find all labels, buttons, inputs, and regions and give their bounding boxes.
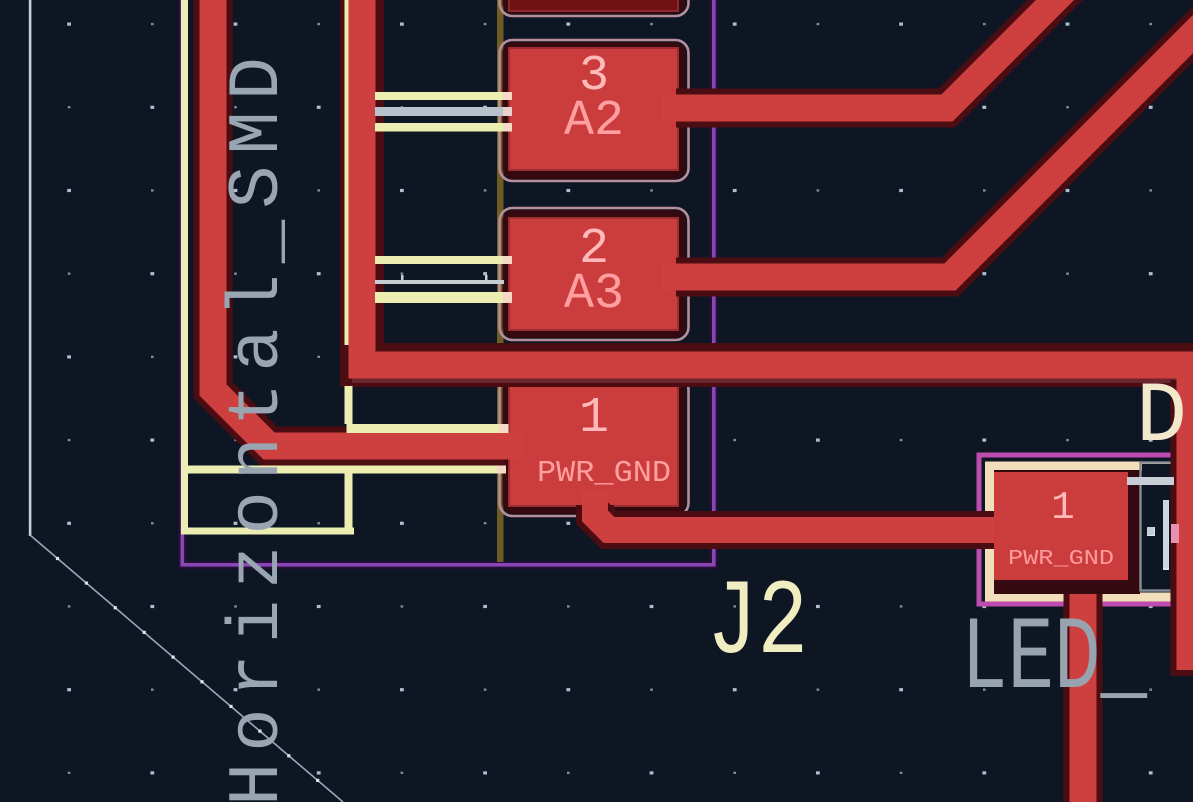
svg-text:J2: J2 bbox=[707, 564, 808, 685]
svg-text:D: D bbox=[1136, 369, 1187, 466]
svg-text:1: 1 bbox=[579, 390, 609, 447]
svg-text:A3: A3 bbox=[564, 266, 624, 323]
svg-text:PWR_GND: PWR_GND bbox=[537, 456, 671, 491]
svg-text:1: 1 bbox=[1051, 486, 1074, 530]
svg-text:A2: A2 bbox=[564, 93, 624, 150]
svg-text:PWR_GND: PWR_GND bbox=[1008, 548, 1114, 571]
svg-text:LED_: LED_ bbox=[961, 601, 1147, 719]
